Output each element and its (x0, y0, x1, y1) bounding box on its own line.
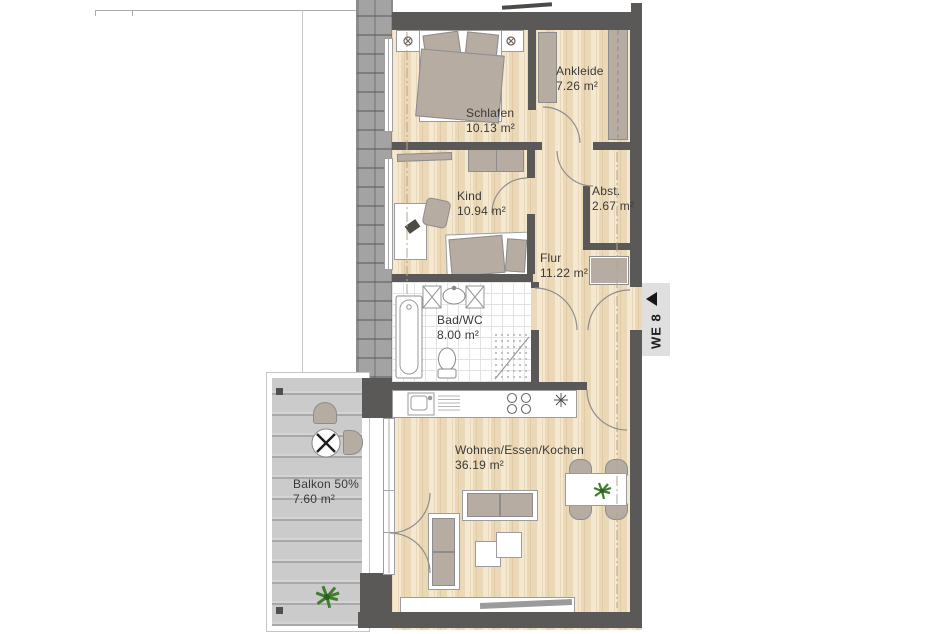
room-label-bad: Bad/WC 8.00 m² (437, 313, 483, 342)
sofa-cushion (467, 493, 500, 517)
dresser (468, 148, 524, 172)
room-label-flur: Flur 11.22 m² (540, 251, 588, 280)
window (384, 158, 393, 270)
unit-entrance-marker: WE 8 (642, 283, 670, 356)
shower (493, 332, 531, 380)
balcony-chair (313, 402, 337, 424)
room-label-kind: Kind 10.94 m² (457, 189, 506, 218)
floor-plan: Schlafen 10.13 m² Ankleide 7.26 m² Kind … (0, 0, 951, 634)
room-label-schlafen: Schlafen 10.13 m² (466, 106, 515, 135)
room-name: Schlafen (466, 106, 515, 121)
wardrobe (538, 32, 557, 103)
wall (528, 30, 536, 110)
room-name: Ankleide (556, 64, 604, 79)
wall (358, 612, 642, 628)
wall (392, 274, 533, 282)
wall (392, 12, 642, 30)
room-name: Kind (457, 189, 506, 204)
wall (583, 186, 590, 243)
room-area: 11.22 m² (540, 266, 588, 281)
room-name: Balkon 50% (293, 477, 359, 492)
room-area: 2.67 m² (592, 199, 634, 214)
room-area: 36.19 m² (455, 458, 584, 473)
wall (593, 142, 630, 150)
sofa-cushion (432, 518, 455, 552)
dining-table (565, 473, 627, 506)
room-label-ankleide: Ankleide 7.26 m² (556, 64, 604, 93)
room-area: 7.26 m² (556, 79, 604, 94)
wall (362, 378, 392, 418)
site-outline-tick (132, 10, 133, 16)
coffee-table (496, 532, 522, 558)
entrance-arrow-icon (646, 292, 657, 306)
unit-label: WE 8 (642, 308, 670, 354)
room-label-balkon: Balkon 50% 7.60 m² (293, 477, 359, 506)
site-outline-left (302, 10, 303, 374)
room-label-wohnen: Wohnen/Essen/Kochen 36.19 m² (455, 443, 584, 472)
wall (531, 330, 539, 382)
room-area: 10.94 m² (457, 204, 506, 219)
balcony-post (276, 388, 283, 395)
wardrobe (608, 27, 628, 140)
room-area: 7.60 m² (293, 492, 359, 507)
room-area: 10.13 m² (466, 121, 515, 136)
sofa-cushion (500, 493, 533, 517)
room-area: 8.00 m² (437, 328, 483, 343)
kitchen-counter (392, 390, 577, 418)
sofa-cushion (432, 552, 455, 586)
window (384, 38, 393, 132)
kid-bed-pillow (505, 238, 527, 272)
wall (527, 214, 535, 274)
nightstand (396, 30, 421, 52)
balcony-glazing (383, 418, 395, 575)
roof-edge (502, 2, 552, 9)
wall (365, 382, 587, 390)
wall (583, 243, 630, 250)
room-name: Wohnen/Essen/Kochen (455, 443, 584, 458)
room-name: Flur (540, 251, 588, 266)
balcony-post (276, 607, 283, 614)
wall (392, 142, 542, 150)
site-outline-top (95, 10, 376, 11)
hall-cabinet (590, 257, 628, 284)
site-outline-tick (95, 10, 96, 16)
wall (630, 12, 642, 287)
room-name: Abst. (592, 184, 634, 199)
wall (527, 150, 535, 178)
wall (531, 282, 539, 288)
kid-bed-blanket (448, 235, 505, 278)
room-label-abst: Abst. 2.67 m² (592, 184, 634, 213)
wall (630, 330, 642, 628)
wall (360, 573, 392, 618)
nightstand (499, 30, 524, 52)
room-name: Bad/WC (437, 313, 483, 328)
